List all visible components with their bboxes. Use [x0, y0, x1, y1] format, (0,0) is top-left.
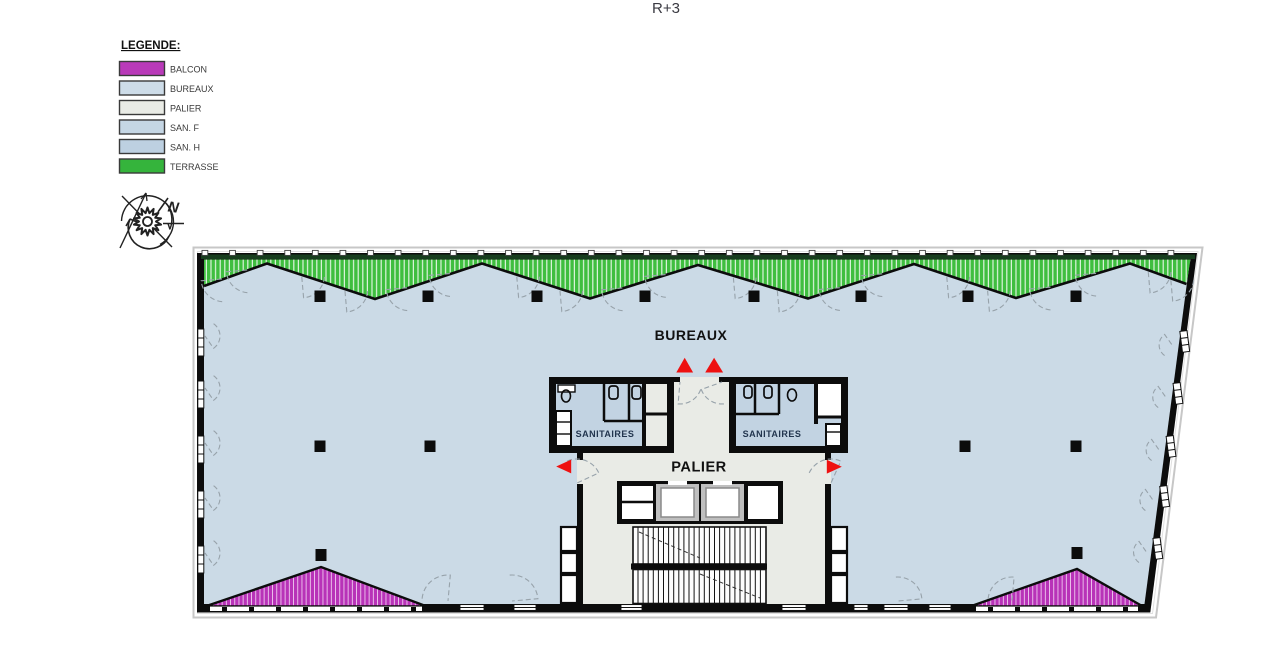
svg-text:SAN. H: SAN. H	[170, 143, 200, 153]
svg-text:SAN. F: SAN. F	[170, 123, 200, 133]
svg-text:TERRASSE: TERRASSE	[170, 162, 219, 172]
svg-text:BALCON: BALCON	[170, 65, 207, 75]
svg-text:BUREAUX: BUREAUX	[655, 327, 728, 343]
svg-text:BUREAUX: BUREAUX	[170, 84, 214, 94]
svg-text:PALIER: PALIER	[170, 104, 202, 114]
svg-text:N: N	[167, 199, 181, 218]
svg-text:SANITAIRES: SANITAIRES	[576, 429, 635, 439]
svg-text:PALIER: PALIER	[671, 460, 726, 476]
svg-text:SANITAIRES: SANITAIRES	[743, 429, 802, 439]
svg-text:R+3: R+3	[652, 0, 680, 17]
svg-text:LEGENDE:: LEGENDE:	[121, 40, 180, 52]
